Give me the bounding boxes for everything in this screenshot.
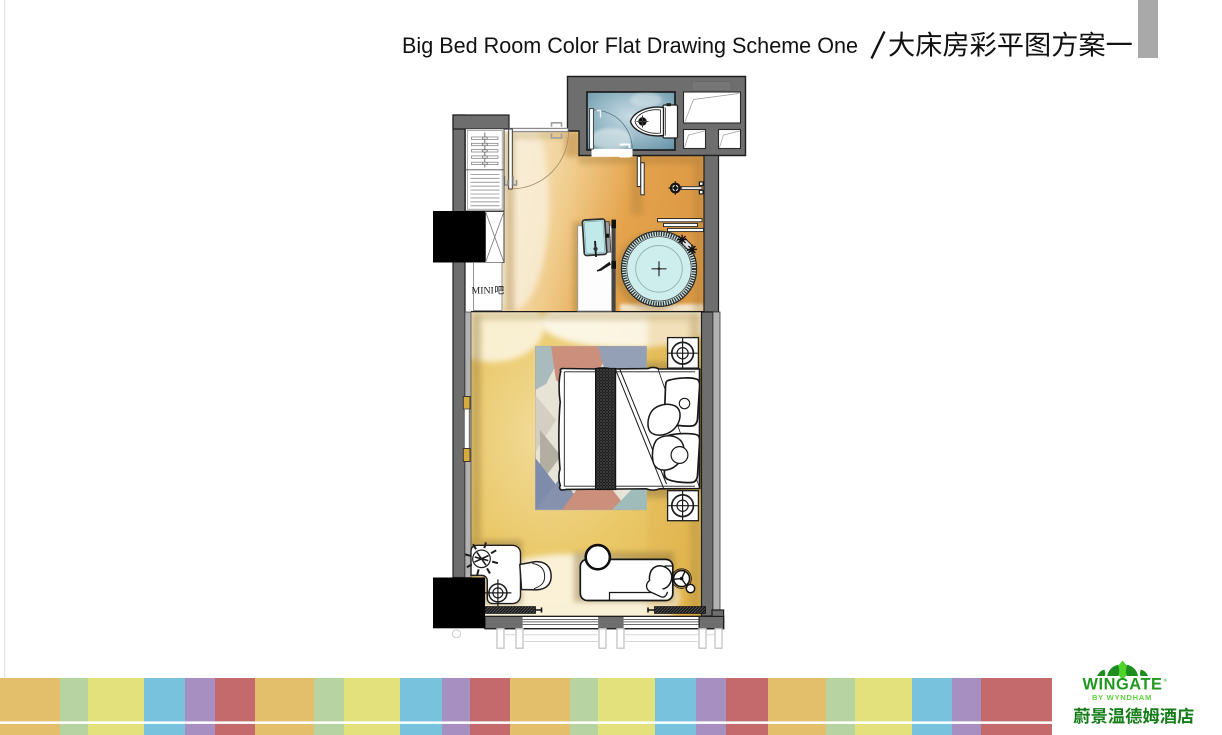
svg-text:WINGATE: WINGATE	[1082, 675, 1162, 693]
svg-text:MINI: MINI	[472, 286, 494, 297]
svg-text:Big Bed Room Color Flat Drawin: Big Bed Room Color Flat Drawing Scheme O…	[402, 33, 858, 58]
svg-text:BY WYNDHAM: BY WYNDHAM	[1092, 693, 1152, 702]
